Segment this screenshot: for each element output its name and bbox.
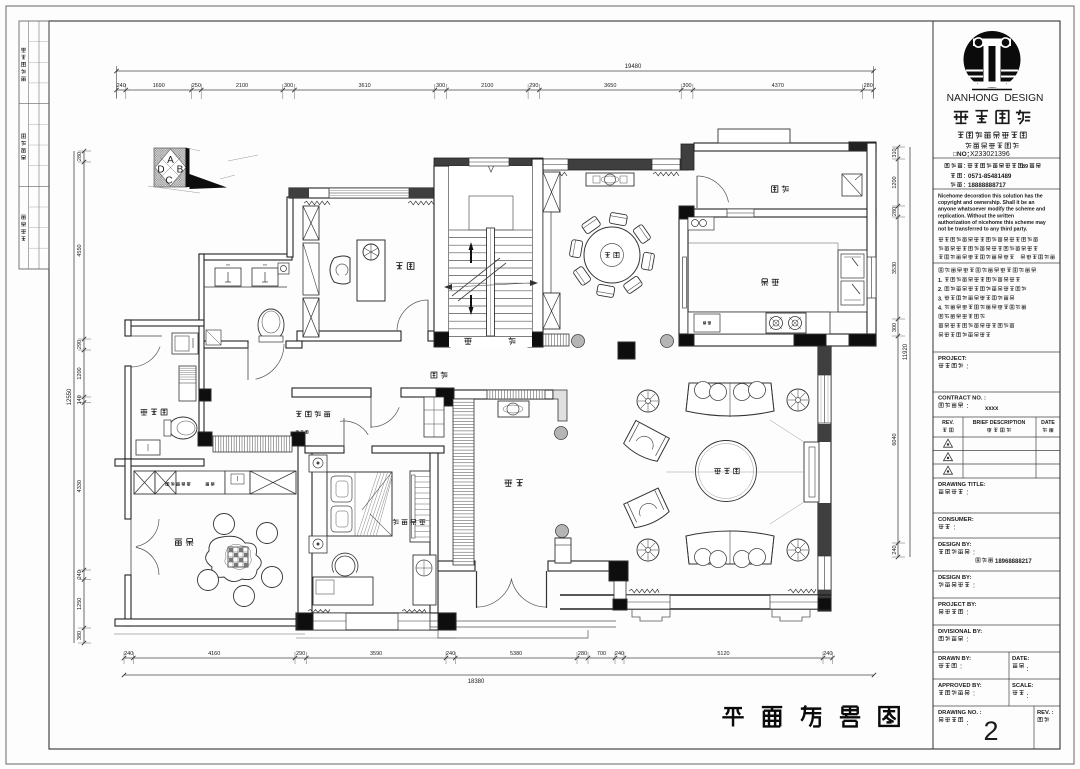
svg-text:D: D <box>157 165 164 176</box>
svg-text:anyone whatsoever modify the s: anyone whatsoever modify the scheme and <box>938 207 1045 213</box>
svg-text:CONSUMER:: CONSUMER: <box>938 517 974 523</box>
svg-text:CONTRACT NO. :: CONTRACT NO. : <box>938 396 986 402</box>
svg-text:X233021396: X233021396 <box>970 151 1010 158</box>
svg-text:2: 2 <box>983 716 998 746</box>
svg-text:：: ： <box>966 404 972 410</box>
svg-text:6040: 6040 <box>892 433 898 445</box>
svg-text:：: ： <box>966 721 972 727</box>
svg-text:3.: 3. <box>938 296 943 302</box>
svg-text:2.: 2. <box>938 287 943 293</box>
svg-text:700: 700 <box>597 651 606 657</box>
svg-text:DATE:: DATE: <box>1012 656 1029 662</box>
svg-text:xxxx: xxxx <box>985 406 999 412</box>
svg-text:REV.: REV. <box>942 420 954 426</box>
svg-text:Nicehome decoration this solut: Nicehome decoration this solution has th… <box>938 194 1043 200</box>
svg-text:4330: 4330 <box>77 480 83 492</box>
svg-text:C: C <box>165 176 172 187</box>
svg-text:250: 250 <box>192 83 201 89</box>
svg-text:A: A <box>167 155 174 166</box>
svg-text:1250: 1250 <box>77 598 83 610</box>
svg-text:REV. :: REV. : <box>1037 710 1054 716</box>
svg-text:290: 290 <box>529 83 538 89</box>
svg-text:：: ： <box>1026 667 1032 673</box>
svg-text:B: B <box>177 165 184 176</box>
svg-text:300: 300 <box>284 83 293 89</box>
svg-text:240: 240 <box>892 545 898 554</box>
svg-text:DRAWING NO. :: DRAWING NO. : <box>938 710 982 716</box>
svg-text:140: 140 <box>77 395 83 404</box>
svg-text:：: ： <box>966 638 972 644</box>
svg-text:4160: 4160 <box>208 651 220 657</box>
svg-text:240: 240 <box>124 651 133 657</box>
svg-text:APPROVED BY:: APPROVED BY: <box>938 683 982 689</box>
svg-text:3590: 3590 <box>370 651 382 657</box>
svg-text:DRAWING TITLE:: DRAWING TITLE: <box>938 482 986 488</box>
svg-text:：: ： <box>966 491 972 497</box>
svg-text:PROJECT:: PROJECT: <box>938 356 967 362</box>
svg-text:not be transferred to any thir: not be transferred to any third party. <box>938 227 1028 233</box>
svg-text:18968888217: 18968888217 <box>995 559 1032 565</box>
svg-text:4550: 4550 <box>77 244 83 256</box>
svg-text:：: ： <box>973 551 979 557</box>
svg-text:19480: 19480 <box>625 64 642 70</box>
svg-text:BRIEF DESCRIPTION: BRIEF DESCRIPTION <box>973 420 1026 426</box>
svg-text:12550: 12550 <box>67 388 73 405</box>
svg-text:0571-85481489: 0571-85481489 <box>968 173 1012 180</box>
svg-text:89: 89 <box>1022 164 1028 170</box>
svg-text:5380: 5380 <box>510 651 522 657</box>
svg-text:240: 240 <box>823 651 832 657</box>
svg-text:4.: 4. <box>938 306 943 312</box>
svg-text:18380: 18380 <box>468 679 485 685</box>
svg-text:18888888717: 18888888717 <box>968 182 1006 189</box>
svg-text:3610: 3610 <box>358 83 370 89</box>
svg-text:authorization of nicehome this: authorization of nicehome this scheme ma… <box>938 220 1046 226</box>
svg-text:5120: 5120 <box>717 651 729 657</box>
svg-text:2100: 2100 <box>481 83 493 89</box>
svg-text:280: 280 <box>77 152 83 161</box>
svg-text:▪▪▪: ▪▪▪ <box>263 263 267 267</box>
svg-text:240: 240 <box>117 83 126 89</box>
svg-text:310: 310 <box>892 148 898 157</box>
svg-text:replication. Without the writt: replication. Without the written <box>938 213 1014 219</box>
svg-text:：: ： <box>963 164 969 170</box>
svg-text:4370: 4370 <box>772 83 784 89</box>
svg-text:DATE: DATE <box>1041 420 1055 426</box>
svg-text:280: 280 <box>578 651 587 657</box>
svg-text:240: 240 <box>446 651 455 657</box>
svg-text:300: 300 <box>682 83 691 89</box>
svg-text:3530: 3530 <box>892 262 898 274</box>
svg-text:280: 280 <box>864 83 873 89</box>
svg-text:1.: 1. <box>938 278 943 284</box>
svg-text:11920: 11920 <box>903 343 909 360</box>
svg-text:380: 380 <box>77 631 83 640</box>
svg-text:：: ： <box>953 526 959 532</box>
svg-text:DIVISIONAL BY:: DIVISIONAL BY: <box>938 629 982 635</box>
svg-text:DESIGN BY:: DESIGN BY: <box>938 542 971 548</box>
svg-text:1690: 1690 <box>153 83 165 89</box>
svg-text:DRAWN BY:: DRAWN BY: <box>938 656 971 662</box>
svg-text:：: ： <box>966 611 972 617</box>
svg-text:：: ： <box>1026 694 1032 700</box>
svg-text:240: 240 <box>615 651 624 657</box>
svg-text:：: ： <box>973 584 979 590</box>
svg-text:PROJECT BY:: PROJECT BY: <box>938 602 977 608</box>
svg-text:▪▪▪: ▪▪▪ <box>226 263 230 267</box>
svg-text:copyright and ownership. Shall: copyright and ownership. Shall it be an <box>938 200 1035 206</box>
svg-text:290: 290 <box>296 651 305 657</box>
svg-text:DESIGN BY:: DESIGN BY: <box>938 575 971 581</box>
svg-text:3650: 3650 <box>604 83 616 89</box>
svg-text:300: 300 <box>436 83 445 89</box>
svg-text:：: ： <box>966 365 972 371</box>
svg-text:1200: 1200 <box>892 176 898 188</box>
svg-text:2100: 2100 <box>236 83 248 89</box>
svg-text:290: 290 <box>77 340 83 349</box>
svg-text:：: ： <box>960 665 966 671</box>
svg-text:：: ： <box>973 692 979 698</box>
svg-text:280: 280 <box>892 207 898 216</box>
svg-text:SCALE:: SCALE: <box>1012 683 1034 689</box>
svg-text:NANHONG DESIGN: NANHONG DESIGN <box>947 93 1044 104</box>
svg-text:300: 300 <box>892 323 898 332</box>
svg-text:240: 240 <box>77 570 83 579</box>
svg-text:1200: 1200 <box>77 367 83 379</box>
